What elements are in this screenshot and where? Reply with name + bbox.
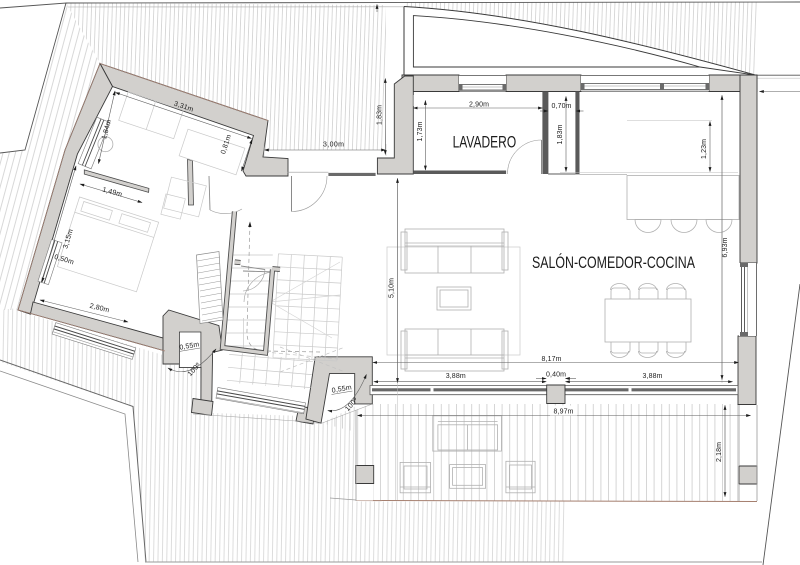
svg-text:SALÓN-COMEDOR-COCINA: SALÓN-COMEDOR-COCINA	[532, 253, 695, 272]
svg-text:8,17m: 8,17m	[542, 356, 562, 363]
svg-text:3,88m: 3,88m	[643, 373, 663, 380]
svg-text:LAVADERO: LAVADERO	[453, 134, 517, 152]
svg-text:5,10m: 5,10m	[389, 278, 396, 298]
svg-text:2,90m: 2,90m	[469, 102, 489, 109]
svg-text:1,23m: 1,23m	[701, 139, 708, 159]
svg-text:2,18m: 2,18m	[716, 442, 723, 462]
svg-text:1,83m: 1,83m	[377, 105, 384, 125]
svg-text:3,88m: 3,88m	[446, 373, 466, 380]
svg-text:0,70m: 0,70m	[552, 103, 572, 110]
svg-text:1,73m: 1,73m	[417, 121, 424, 141]
svg-text:3,00m: 3,00m	[323, 142, 344, 149]
svg-text:1,83m: 1,83m	[557, 124, 564, 144]
svg-text:0,40m: 0,40m	[546, 372, 566, 379]
svg-text:6,93m: 6,93m	[722, 237, 729, 257]
svg-text:8,97m: 8,97m	[554, 409, 574, 416]
